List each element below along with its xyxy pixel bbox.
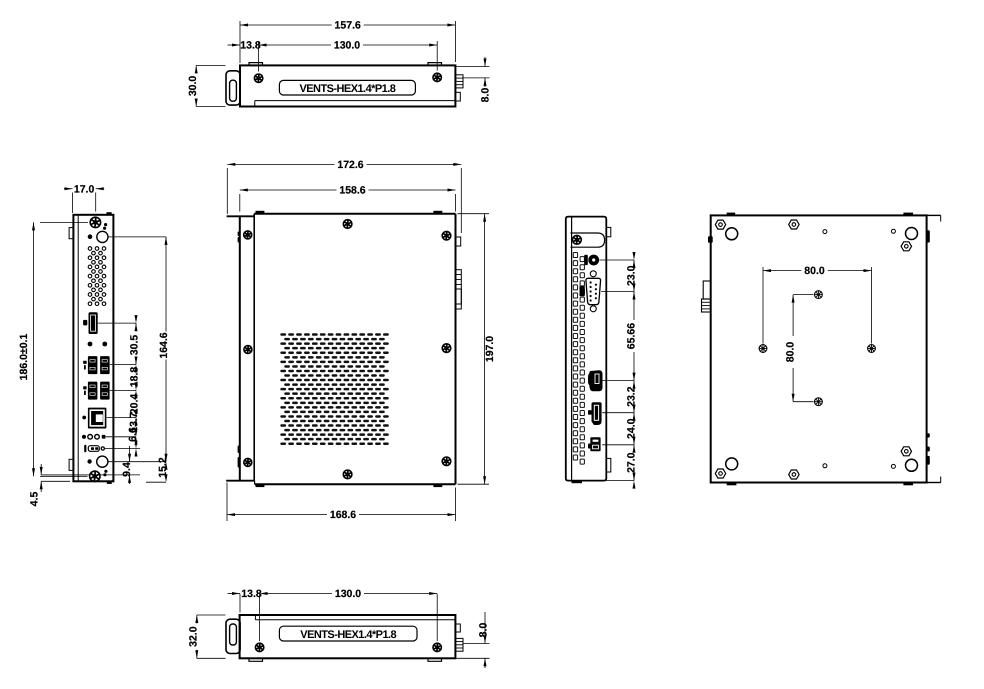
svg-text:15.2: 15.2 — [157, 457, 169, 478]
svg-text:164.6: 164.6 — [158, 332, 170, 358]
svg-text:30.5: 30.5 — [129, 335, 141, 356]
svg-text:130.0: 130.0 — [335, 588, 361, 600]
svg-text:17.0: 17.0 — [74, 183, 95, 195]
svg-text:18.8: 18.8 — [129, 367, 141, 388]
svg-text:13.8: 13.8 — [241, 588, 262, 600]
svg-text:6.6: 6.6 — [127, 427, 139, 442]
svg-text:157.6: 157.6 — [335, 20, 361, 32]
svg-text:80.0: 80.0 — [785, 342, 797, 363]
svg-text:80.0: 80.0 — [804, 265, 825, 277]
svg-text:13.8: 13.8 — [240, 40, 261, 52]
svg-text:197.0: 197.0 — [484, 336, 496, 362]
svg-text:8.0: 8.0 — [478, 623, 490, 638]
svg-text:168.6: 168.6 — [330, 509, 356, 521]
svg-text:172.6: 172.6 — [337, 159, 363, 171]
svg-text:8.0: 8.0 — [480, 88, 492, 103]
svg-text:VENTS-HEX1.4*P1.8: VENTS-HEX1.4*P1.8 — [299, 83, 395, 95]
svg-text:VENTS-HEX1.4*P1.8: VENTS-HEX1.4*P1.8 — [300, 629, 396, 641]
svg-text:23.2: 23.2 — [625, 386, 637, 407]
svg-text:65.66: 65.66 — [625, 323, 637, 349]
svg-text:32.0: 32.0 — [188, 626, 200, 647]
svg-text:23.0: 23.0 — [625, 265, 637, 286]
svg-text:24.0: 24.0 — [625, 418, 637, 439]
svg-text:20.4: 20.4 — [129, 394, 141, 415]
svg-text:130.0: 130.0 — [334, 40, 360, 52]
svg-text:186.0±0.1: 186.0±0.1 — [18, 334, 30, 381]
svg-text:158.6: 158.6 — [339, 185, 365, 197]
svg-text:27.0: 27.0 — [625, 452, 637, 473]
svg-text:4.5: 4.5 — [29, 492, 41, 507]
svg-text:30.0: 30.0 — [187, 76, 199, 97]
svg-text:9.4: 9.4 — [121, 462, 133, 477]
